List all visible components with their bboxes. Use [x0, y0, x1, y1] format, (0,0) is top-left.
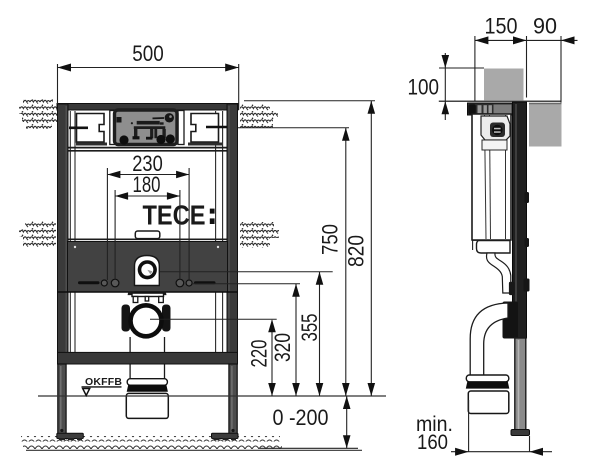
svg-text:750: 750	[318, 224, 343, 255]
svg-text:100: 100	[408, 75, 440, 100]
svg-text:150: 150	[485, 14, 518, 39]
svg-text:0 -200: 0 -200	[273, 405, 329, 430]
svg-text:220: 220	[247, 340, 272, 368]
svg-text:160: 160	[417, 430, 448, 454]
svg-text:180: 180	[133, 172, 161, 197]
svg-text:TECE: TECE	[143, 200, 206, 231]
svg-text:820: 820	[344, 235, 369, 267]
svg-text:355: 355	[297, 314, 322, 342]
svg-text:320: 320	[270, 333, 295, 362]
svg-text:90: 90	[533, 14, 557, 39]
svg-text:500: 500	[132, 41, 164, 66]
